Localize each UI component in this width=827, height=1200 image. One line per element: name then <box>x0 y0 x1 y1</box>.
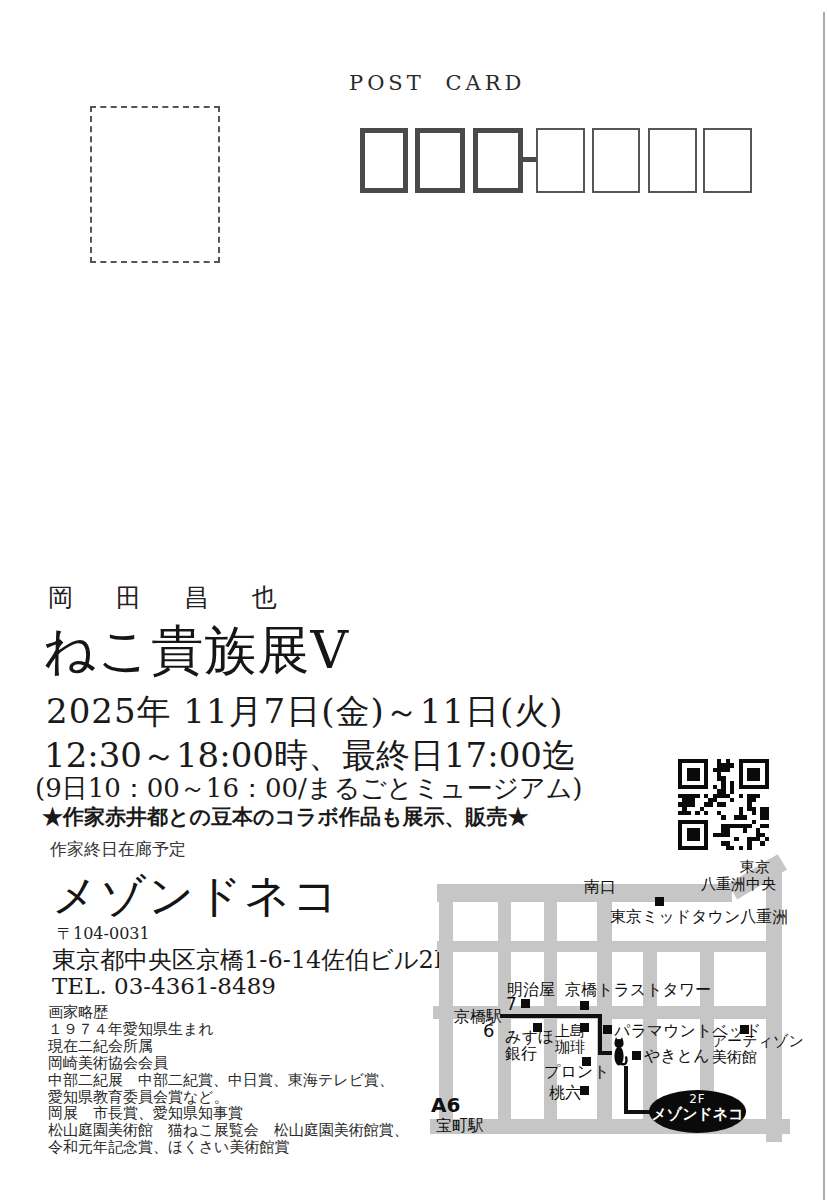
map-marker <box>521 999 530 1008</box>
collab-announcement: ★作家赤井都との豆本のコラボ作品も展示、販売★ <box>42 803 528 831</box>
exhibition-dates: 2025年 11月7日(金)～11日(火) <box>46 689 564 735</box>
bio-line: 令和元年記念賞、ほくさい美術館賞 <box>48 1139 409 1156</box>
venue-name: メゾンドネコ <box>52 866 340 926</box>
postal-code-box <box>360 128 408 193</box>
bio-heading: 画家略歴 <box>48 1004 409 1021</box>
exhibition-note: (9日10：00～16：00/まるごとミュージアム) <box>35 771 582 806</box>
postal-code-box <box>703 128 752 193</box>
route-line <box>624 1066 628 1114</box>
scan-edge-line <box>823 12 825 1200</box>
venue-tel: TEL. 03-4361-8489 <box>52 973 276 999</box>
map-label-exit-a6: A6 <box>431 1097 460 1114</box>
bio-line: 岡展 市長賞、愛知県知事賞 <box>48 1105 409 1122</box>
artist-name: 岡 田 昌 也 <box>48 581 286 614</box>
venue-bubble-name: メゾンドネコ <box>649 1106 746 1122</box>
venue-address: 東京都中央区京橋1-6-14佐伯ビル2F <box>52 944 450 976</box>
map-label-yaesu-chuo: 八重洲中央 <box>701 876 776 893</box>
postal-code-box <box>473 128 523 193</box>
map-label-trust-tower: 京橋トラストタワー <box>565 981 711 998</box>
map-label-south-exit: 南口 <box>584 878 616 895</box>
map-label-pronto: プロント <box>544 1063 610 1080</box>
map-label-artizon-museum: アーティゾン 美術館 <box>712 1033 804 1065</box>
map-label-tokyo: 東京 <box>740 859 770 876</box>
bio-line: 松山庭園美術館 猫ねこ展覧会 松山庭園美術館賞、 <box>48 1122 409 1139</box>
postcard: POST CARD 岡 田 昌 也 ねこ貴族展V 2025年 11月7日(金)～… <box>0 0 827 1200</box>
map-label-yakiton: やきとん <box>644 1047 710 1064</box>
postal-code-box <box>592 128 640 193</box>
map-marker <box>655 897 664 906</box>
postal-code-box <box>415 128 465 193</box>
post-card-label: POST CARD <box>349 71 525 95</box>
map-marker <box>580 1086 589 1095</box>
map-label-kyobashi-station: 京橋駅 <box>454 1008 502 1025</box>
stamp-box <box>90 106 220 263</box>
bio-line: 岡崎美術協会会員 <box>48 1055 409 1072</box>
postal-code-box <box>648 128 697 193</box>
venue-floor-label: 2F <box>649 1092 746 1106</box>
exhibition-title: ねこ貴族展V <box>43 616 349 686</box>
map-label-exit7: 7 <box>506 996 517 1013</box>
artist-presence-note: 作家終日在廊予定 <box>50 838 186 861</box>
map-label-mizuho-bank: みずほ 銀行 <box>505 1028 554 1062</box>
map-label-takaracho-station: 宝町駅 <box>436 1117 484 1134</box>
map-label-ueshima-coffee: 上島 珈琲 <box>555 1024 585 1055</box>
map-marker <box>580 1001 589 1010</box>
access-map: 南口 東京 八重洲中央 東京ミッドタウン八重洲 明治屋 7 京橋トラストタワー … <box>428 855 795 1165</box>
bio-line: 愛知県教育委員会賞など。 <box>48 1089 409 1106</box>
map-marker <box>603 1025 612 1034</box>
venue-map-bubble: 2F メゾンドネコ <box>649 1090 746 1133</box>
qr-code <box>678 757 769 852</box>
route-line <box>500 1014 602 1018</box>
bio-line: 中部二紀展 中部二紀賞、中日賞、東海テレビ賞、 <box>48 1072 409 1089</box>
map-label-midtown: 東京ミッドタウン八重洲 <box>610 908 788 925</box>
map-marker <box>632 1051 641 1060</box>
artist-bio: 画家略歴 １９７４年愛知県生まれ 現在二紀会所属 岡崎美術協会会員 中部二紀展 … <box>48 1004 409 1156</box>
map-label-momoroku: 桃六 <box>549 1084 581 1101</box>
bio-line: 現在二紀会所属 <box>48 1038 409 1055</box>
map-label-exit6: 6 <box>483 1022 494 1039</box>
postal-code-box <box>536 128 585 193</box>
route-line <box>598 1014 602 1055</box>
bio-line: １９７４年愛知県生まれ <box>48 1021 409 1038</box>
postal-code-hyphen <box>522 157 537 162</box>
cat-icon <box>610 1037 628 1067</box>
venue-postal-code: 〒104-0031 <box>57 924 150 945</box>
